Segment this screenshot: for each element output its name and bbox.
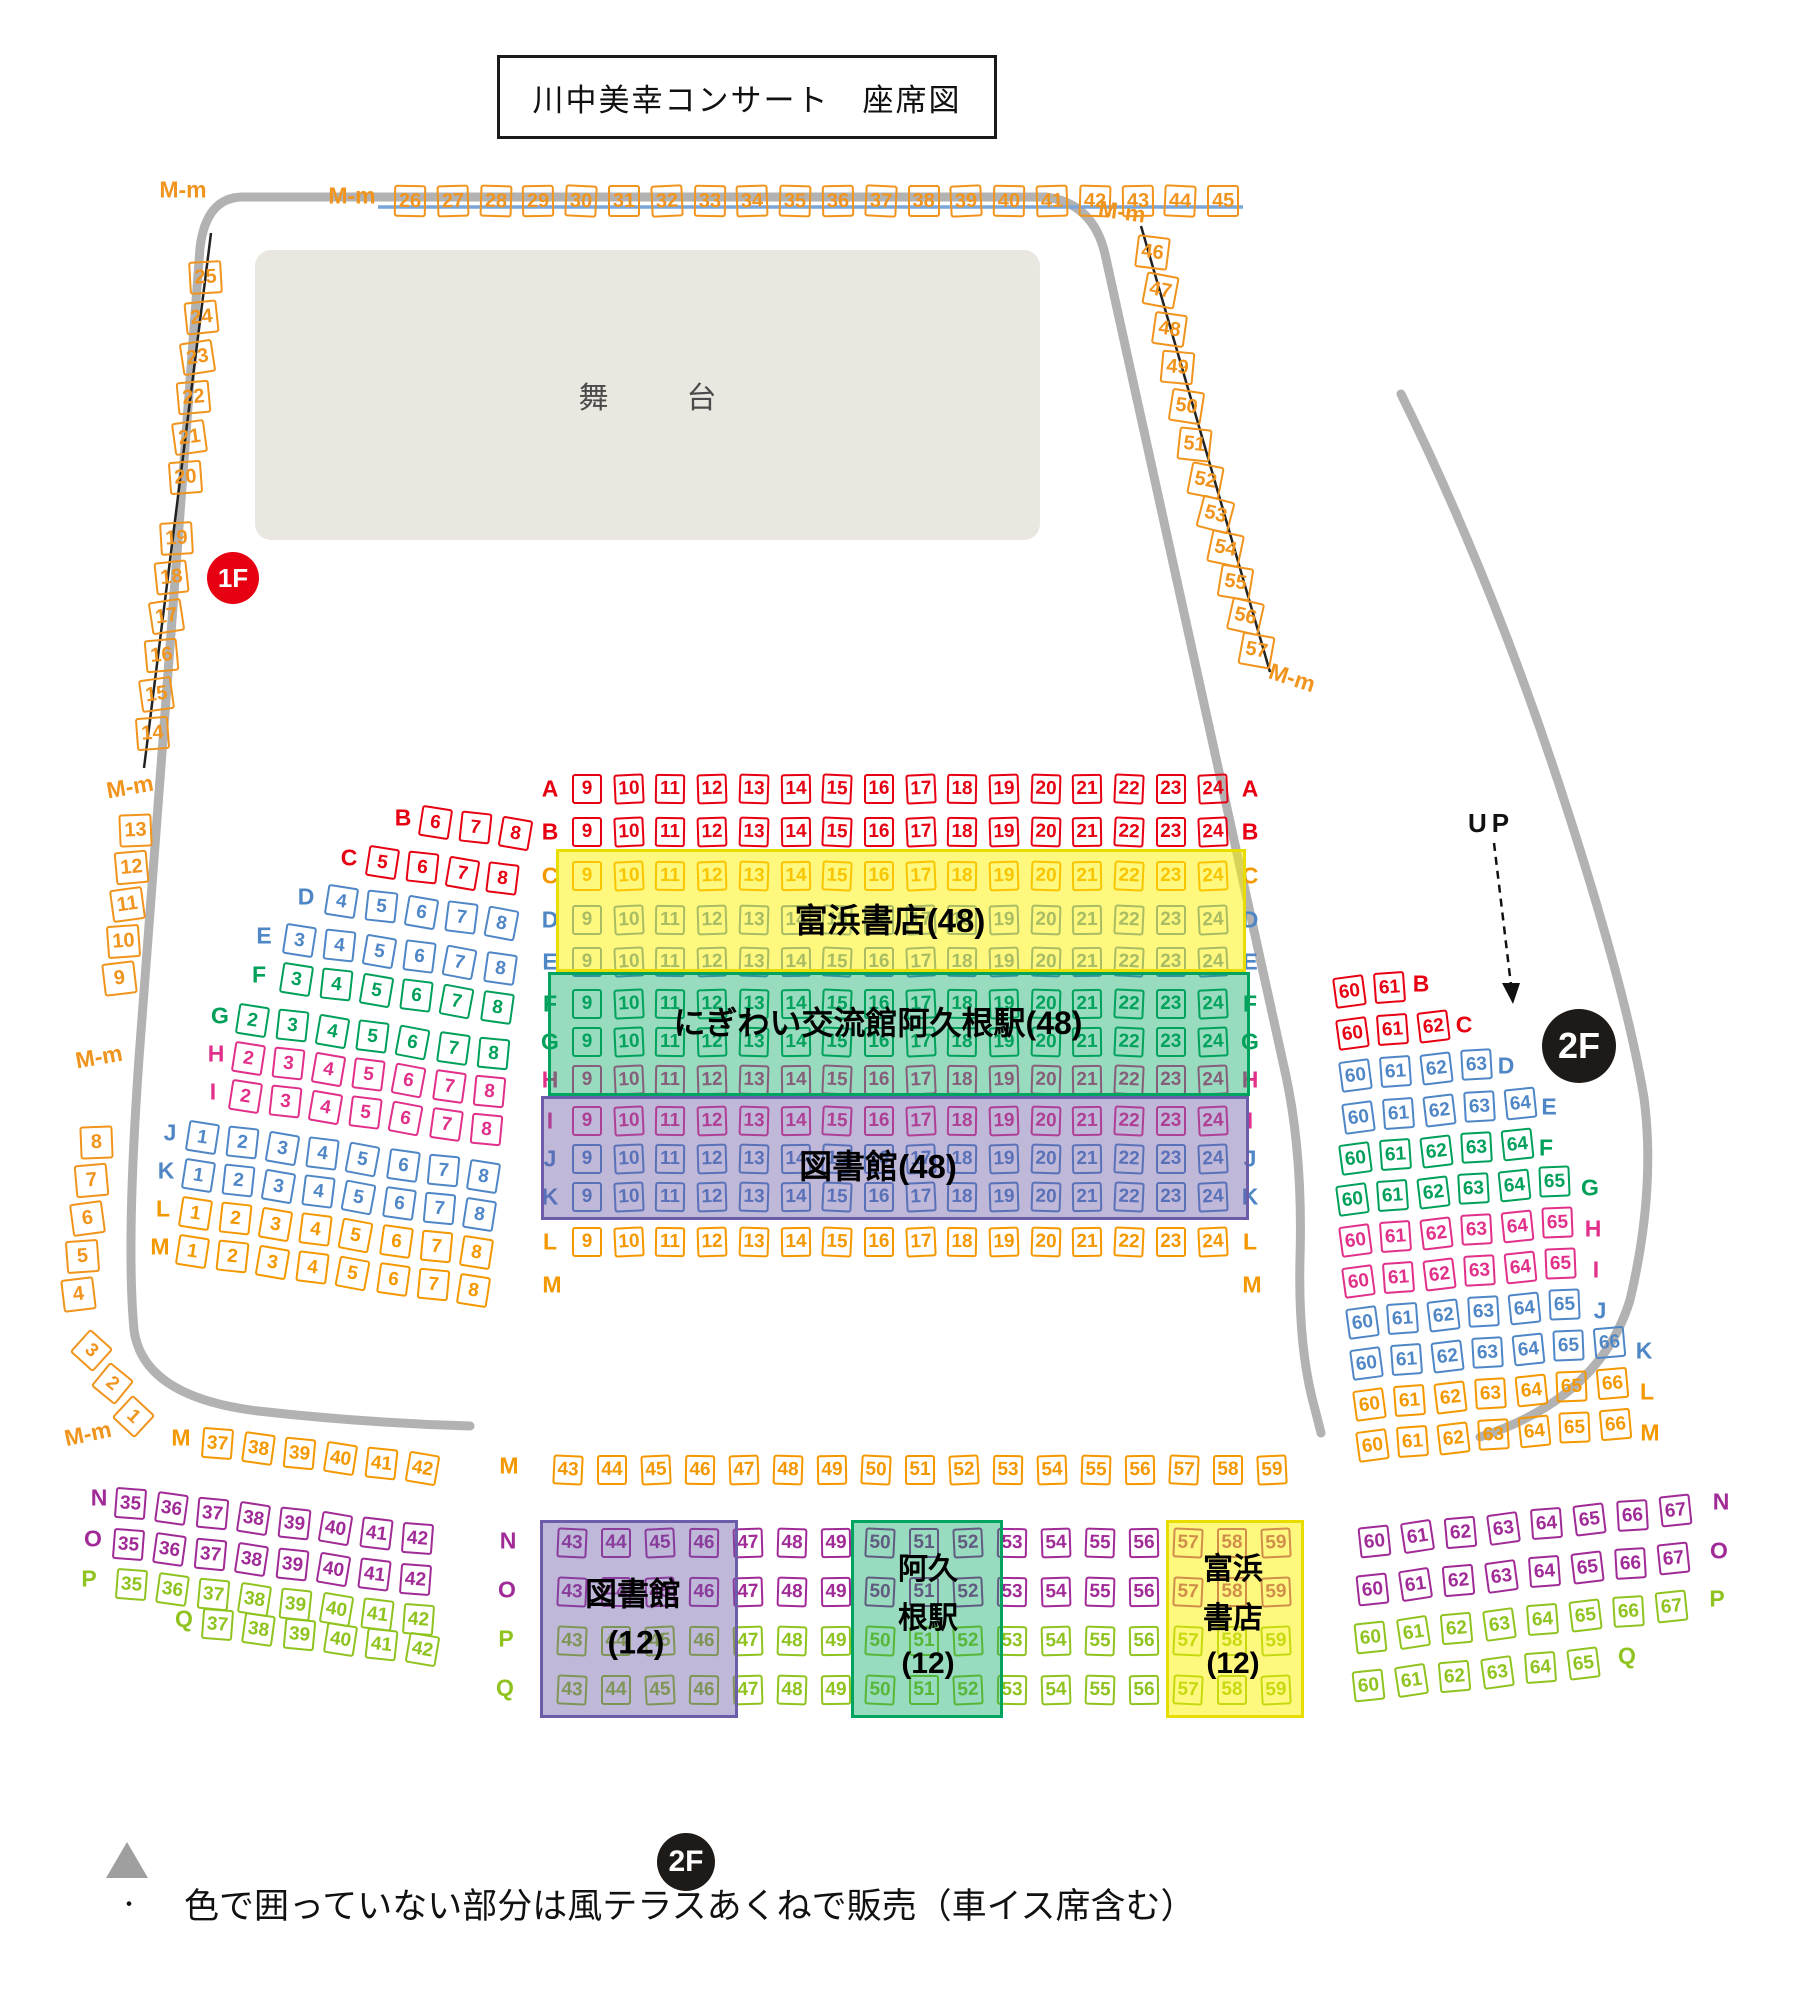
seat-right-L-61: 61	[1393, 1384, 1426, 1417]
seat-bcenter-N-48: 48	[777, 1528, 808, 1559]
chart-title-box: 川中美幸コンサート 座席図	[497, 55, 997, 139]
seat-right-G-65: 65	[1538, 1165, 1570, 1197]
seat-right-H-63: 63	[1460, 1213, 1493, 1246]
seat-right-H-65: 65	[1541, 1206, 1573, 1238]
seat-bleft-Q-41: 41	[364, 1627, 398, 1661]
seat-left-F-3: 3	[278, 961, 313, 996]
seat-center-A-14: 14	[780, 774, 810, 804]
seat-center-A-15: 15	[821, 773, 852, 804]
footnote-text: 色で囲っていない部分は風テラスあくねで販売（車イス席含む）	[184, 1887, 1196, 1926]
seat-center-B-16: 16	[864, 817, 894, 847]
seat-bcenter-P-56: 56	[1129, 1626, 1159, 1656]
row-label-left-M-0: M	[150, 1234, 169, 1261]
row-label-mm-top-0: M-m	[328, 183, 375, 210]
seat-left-G-5: 5	[355, 1019, 390, 1054]
seat-left-F-6: 6	[399, 978, 434, 1013]
row-label-left-C-0: C	[341, 845, 358, 872]
seat-left-H-3: 3	[271, 1047, 305, 1081]
seat-right-D-63: 63	[1460, 1048, 1493, 1081]
section-akune-station-48-label-0: にぎわい交流館阿久根駅(48)	[674, 998, 1083, 1044]
seat-left-D-6: 6	[403, 894, 439, 930]
seat-mm-right-a-51: 51	[1176, 426, 1212, 462]
seat-bcenter-M-57: 57	[1168, 1454, 1199, 1485]
footnote: ・色で囲っていない部分は風テラスあくねで販売（車イス席含む）	[118, 1878, 1196, 1929]
seat-left-K-7: 7	[422, 1192, 456, 1226]
seat-right-G-64: 64	[1497, 1168, 1531, 1202]
seat-bright-O-60: 60	[1355, 1572, 1389, 1606]
seat-right-I-65: 65	[1544, 1247, 1576, 1279]
seat-right-L-64: 64	[1514, 1373, 1548, 1407]
seat-bcenter-M-48: 48	[773, 1455, 804, 1486]
seat-right-E-63: 63	[1463, 1090, 1496, 1123]
seat-right-H-61: 61	[1379, 1220, 1412, 1253]
row-label-center-B-1: B	[1242, 819, 1259, 846]
seat-bright-Q-60: 60	[1351, 1668, 1385, 1702]
seat-bcenter-M-47: 47	[729, 1455, 760, 1486]
seat-right-B-61: 61	[1373, 971, 1406, 1004]
seat-mm-top-34: 34	[736, 185, 769, 218]
seat-right-G-63: 63	[1457, 1172, 1490, 1205]
seat-bleft-P-42: 42	[401, 1602, 434, 1635]
seat-mm-top-35: 35	[779, 185, 812, 218]
seat-bcenter-O-49: 49	[821, 1577, 851, 1607]
seat-bcenter-O-56: 56	[1129, 1577, 1159, 1607]
seat-right-M-64: 64	[1517, 1414, 1551, 1448]
seat-left-L-4: 4	[298, 1212, 333, 1247]
seat-bright-P-65: 65	[1568, 1598, 1602, 1632]
seat-left-K-6: 6	[381, 1185, 416, 1220]
seat-bcenter-Q-56: 56	[1129, 1675, 1159, 1705]
seat-left-J-4: 4	[305, 1136, 340, 1171]
seat-mm-top-33: 33	[693, 185, 725, 217]
seat-center-L-14: 14	[780, 1227, 810, 1257]
seat-bright-Q-63: 63	[1480, 1655, 1515, 1690]
seat-bleft-M-40: 40	[322, 1440, 357, 1475]
section-library-12-label-0: 図書館	[585, 1569, 681, 1615]
seat-left-G-2: 2	[234, 1002, 269, 1037]
seat-right-I-61: 61	[1382, 1261, 1415, 1294]
seat-left-K-2: 2	[221, 1164, 255, 1198]
seat-center-B-23: 23	[1156, 817, 1186, 847]
row-label-bcenter-N-0: N	[500, 1528, 517, 1555]
seat-right-K-61: 61	[1390, 1343, 1423, 1376]
seat-mm-left-a-22: 22	[175, 379, 211, 415]
floor-2f-badge-bottom: 2F	[657, 1833, 715, 1891]
seat-left-K-4: 4	[301, 1174, 336, 1209]
seat-center-L-22: 22	[1113, 1226, 1144, 1257]
seat-mm-top-32: 32	[650, 184, 683, 217]
row-label-right-J-0: J	[1594, 1298, 1607, 1325]
seat-left-G-6: 6	[395, 1024, 431, 1060]
seat-center-A-12: 12	[697, 774, 728, 805]
seat-mm-right-b-54: 54	[1206, 528, 1245, 567]
seat-left-C-5: 5	[364, 844, 399, 879]
seat-mm-left-d-5: 5	[65, 1238, 100, 1273]
row-label-center-A-0: A	[542, 776, 559, 803]
row-label-right-M-0: M	[1640, 1420, 1659, 1447]
seat-bcenter-M-51: 51	[905, 1455, 935, 1485]
row-label-left-F-0: F	[252, 962, 266, 989]
footnote-bullet: ・	[118, 1892, 140, 1917]
row-label-right-D-0: D	[1498, 1053, 1515, 1080]
seat-center-B-22: 22	[1113, 816, 1144, 847]
seat-mm-right-b-52: 52	[1186, 461, 1225, 500]
seat-right-F-64: 64	[1500, 1127, 1534, 1161]
seat-left-F-4: 4	[319, 968, 353, 1002]
seat-left-J-5: 5	[345, 1141, 381, 1177]
seat-left-L-6: 6	[378, 1223, 413, 1258]
seat-right-I-63: 63	[1463, 1254, 1496, 1287]
seat-left-J-7: 7	[426, 1154, 460, 1188]
seat-mm-left-c-9: 9	[101, 960, 138, 997]
seat-bright-O-63: 63	[1484, 1559, 1519, 1594]
seat-bleft-Q-40: 40	[322, 1621, 357, 1656]
seat-left-I-3: 3	[268, 1085, 302, 1119]
seat-right-L-63: 63	[1474, 1377, 1507, 1410]
seat-right-K-64: 64	[1511, 1332, 1545, 1366]
row-label-right-F-0: F	[1539, 1135, 1553, 1162]
seat-right-M-66: 66	[1598, 1407, 1632, 1441]
seat-center-L-16: 16	[864, 1227, 894, 1257]
row-label-right-K-0: K	[1636, 1338, 1653, 1365]
row-label-bright-Q-0: Q	[1618, 1643, 1636, 1670]
seat-bcenter-M-56: 56	[1125, 1455, 1155, 1485]
seat-center-A-9: 9	[572, 774, 602, 804]
seat-bcenter-M-46: 46	[685, 1455, 715, 1485]
seat-left-E-6: 6	[402, 939, 437, 974]
seat-left-J-6: 6	[385, 1147, 420, 1182]
seat-left-E-3: 3	[281, 922, 316, 957]
seat-bright-N-66: 66	[1616, 1499, 1649, 1532]
seat-right-E-61: 61	[1382, 1097, 1415, 1130]
section-library-12	[540, 1520, 738, 1718]
seat-left-I-6: 6	[388, 1100, 424, 1136]
seat-bleft-P-35: 35	[114, 1567, 147, 1600]
triangle-marker	[106, 1842, 148, 1878]
seat-mm-top-27: 27	[436, 185, 469, 218]
seat-bleft-P-40: 40	[318, 1591, 354, 1627]
row-label-right-H-0: H	[1585, 1216, 1602, 1243]
row-label-bright-P-0: P	[1709, 1586, 1724, 1613]
seat-left-M-1: 1	[174, 1233, 209, 1268]
seat-center-B-15: 15	[821, 816, 852, 847]
row-label-bleft-M-0: M	[171, 1425, 190, 1452]
seat-mm-left-a-21: 21	[170, 418, 207, 455]
seat-left-E-5: 5	[361, 933, 397, 969]
seat-mm-top-39: 39	[950, 184, 983, 217]
seat-mm-top-45: 45	[1207, 185, 1239, 217]
row-label-center-L-1: L	[1243, 1229, 1257, 1256]
seat-right-D-62: 62	[1419, 1051, 1453, 1085]
seat-mm-left-a-23: 23	[178, 338, 216, 376]
row-label-bcenter-Q-0: Q	[496, 1675, 514, 1702]
seat-mm-top-40: 40	[993, 185, 1025, 217]
seat-left-G-7: 7	[435, 1030, 470, 1065]
seat-center-A-20: 20	[1030, 774, 1061, 805]
seat-mm-left-d-6: 6	[68, 1199, 105, 1236]
seat-right-K-65: 65	[1552, 1329, 1584, 1361]
seat-bcenter-M-50: 50	[860, 1454, 891, 1485]
seat-bright-N-67: 67	[1658, 1494, 1692, 1528]
seat-bright-N-64: 64	[1529, 1507, 1562, 1540]
seat-bleft-N-40: 40	[317, 1510, 353, 1546]
seat-bcenter-M-45: 45	[640, 1454, 671, 1485]
seat-bright-P-62: 62	[1439, 1612, 1473, 1646]
seat-bright-Q-62: 62	[1437, 1660, 1471, 1694]
seat-right-M-63: 63	[1477, 1418, 1510, 1451]
seat-bleft-Q-42: 42	[404, 1631, 440, 1667]
seat-center-A-10: 10	[613, 773, 644, 804]
row-label-right-G-0: G	[1581, 1175, 1599, 1202]
row-label-bleft-Q-0: Q	[175, 1606, 193, 1633]
seat-bcenter-M-43: 43	[552, 1454, 583, 1485]
seat-right-F-63: 63	[1460, 1131, 1493, 1164]
seat-bright-N-63: 63	[1486, 1511, 1521, 1546]
seat-right-I-62: 62	[1422, 1257, 1456, 1291]
seat-mm-left-d-8: 8	[79, 1125, 113, 1159]
seat-left-K-5: 5	[341, 1179, 377, 1215]
seat-bleft-O-36: 36	[152, 1532, 187, 1567]
seat-left-M-6: 6	[375, 1261, 410, 1296]
seat-bright-N-61: 61	[1399, 1519, 1434, 1554]
seat-mm-top-29: 29	[522, 185, 554, 217]
seat-bcenter-M-52: 52	[948, 1454, 979, 1485]
up-label: UP	[1468, 808, 1514, 839]
seat-bright-P-60: 60	[1353, 1620, 1387, 1654]
seat-bcenter-P-48: 48	[777, 1626, 808, 1657]
seat-mm-left-b-14: 14	[134, 715, 169, 750]
row-label-bcenter-M-0: M	[499, 1453, 518, 1480]
seat-mm-right-b-57: 57	[1237, 631, 1275, 669]
seat-bcenter-M-54: 54	[1037, 1455, 1068, 1486]
seat-left-D-4: 4	[323, 883, 358, 918]
seat-left-C-7: 7	[444, 855, 480, 891]
seat-left-E-8: 8	[482, 950, 517, 985]
seat-right-G-62: 62	[1416, 1175, 1450, 1209]
seat-bleft-P-39: 39	[278, 1587, 312, 1621]
row-label-bleft-N-0: N	[91, 1485, 108, 1512]
seat-center-B-13: 13	[738, 817, 769, 848]
section-tomihama-48-label-0: 富浜書店(48)	[795, 894, 986, 942]
seat-left-F-5: 5	[358, 972, 394, 1008]
seat-mm-top-31: 31	[608, 185, 640, 217]
seat-left-J-8: 8	[466, 1158, 501, 1193]
seat-mm-right-b-55: 55	[1217, 563, 1255, 601]
seat-left-M-8: 8	[456, 1272, 491, 1307]
row-label-left-D-0: D	[298, 884, 315, 911]
seat-mm-right-a-47: 47	[1141, 271, 1180, 310]
row-label-center-A-1: A	[1242, 776, 1259, 803]
seat-right-J-63: 63	[1467, 1295, 1500, 1328]
seat-bright-O-67: 67	[1656, 1542, 1690, 1576]
seat-bcenter-M-59: 59	[1256, 1454, 1287, 1485]
seat-bleft-N-38: 38	[235, 1500, 270, 1535]
seat-left-C-6: 6	[405, 851, 439, 885]
seat-center-L-20: 20	[1030, 1227, 1061, 1258]
row-label-left-E-0: E	[256, 923, 271, 950]
seat-center-B-11: 11	[655, 817, 685, 847]
seat-bleft-O-40: 40	[315, 1551, 351, 1587]
row-label-bright-O-0: O	[1710, 1538, 1728, 1565]
seat-right-I-60: 60	[1341, 1264, 1376, 1299]
seat-left-L-5: 5	[338, 1217, 374, 1253]
seat-bleft-M-42: 42	[404, 1450, 440, 1486]
seat-center-B-10: 10	[613, 816, 644, 847]
seat-mm-top-38: 38	[908, 185, 940, 217]
seat-right-D-61: 61	[1379, 1055, 1412, 1088]
seat-left-H-7: 7	[431, 1068, 466, 1103]
seat-bcenter-Q-55: 55	[1085, 1675, 1116, 1706]
seat-mm-left-d-7: 7	[74, 1162, 110, 1198]
seat-right-G-60: 60	[1335, 1182, 1370, 1217]
seat-center-A-19: 19	[989, 774, 1020, 805]
seat-mm-top-37: 37	[864, 184, 897, 217]
seat-left-K-8: 8	[462, 1196, 497, 1231]
row-label-center-M-0: M	[542, 1272, 561, 1299]
seat-center-B-17: 17	[905, 816, 936, 847]
seat-right-K-66: 66	[1592, 1325, 1626, 1359]
up-arrow-head	[1502, 983, 1520, 1004]
seat-bcenter-O-48: 48	[777, 1577, 808, 1608]
row-label-bleft-O-0: O	[84, 1526, 102, 1553]
seat-right-K-62: 62	[1430, 1339, 1464, 1373]
row-label-right-B-0: B	[1413, 971, 1430, 998]
seat-left-H-4: 4	[310, 1051, 346, 1087]
row-label-left-G-0: G	[211, 1003, 229, 1030]
seat-mm-top-44: 44	[1164, 184, 1197, 217]
row-label-left-K-0: K	[158, 1158, 175, 1185]
seat-bleft-N-41: 41	[359, 1516, 394, 1551]
seat-right-L-65: 65	[1555, 1370, 1587, 1402]
seat-right-M-65: 65	[1558, 1411, 1590, 1443]
seat-right-H-64: 64	[1500, 1209, 1534, 1243]
seat-bleft-P-36: 36	[155, 1572, 190, 1607]
seat-left-M-3: 3	[254, 1244, 290, 1280]
seat-left-K-3: 3	[260, 1168, 296, 1204]
seat-right-F-62: 62	[1419, 1134, 1453, 1168]
seat-center-L-19: 19	[989, 1227, 1020, 1258]
row-label-bright-N-0: N	[1713, 1489, 1730, 1516]
seat-bright-P-67: 67	[1654, 1590, 1688, 1624]
seat-left-L-2: 2	[218, 1202, 252, 1236]
row-label-left-I-0: I	[210, 1079, 216, 1106]
seat-left-D-8: 8	[484, 905, 520, 941]
seat-bleft-M-41: 41	[364, 1446, 398, 1480]
section-akune-station-12-label-2: (12)	[901, 1647, 954, 1681]
seat-left-K-1: 1	[180, 1157, 215, 1192]
seat-bleft-Q-37: 37	[200, 1607, 233, 1640]
seat-bcenter-N-49: 49	[821, 1528, 851, 1558]
seat-right-C-60: 60	[1335, 1016, 1370, 1051]
seat-center-A-24: 24	[1197, 773, 1228, 804]
seat-bright-O-66: 66	[1614, 1547, 1647, 1580]
seat-bright-P-63: 63	[1482, 1607, 1517, 1642]
seat-right-C-62: 62	[1416, 1009, 1450, 1043]
row-label-right-L-0: L	[1640, 1379, 1654, 1406]
seat-center-B-20: 20	[1030, 817, 1061, 848]
seat-left-D-5: 5	[364, 890, 398, 924]
seat-center-L-23: 23	[1156, 1227, 1186, 1257]
section-tomihama-12-label-0: 富浜	[1203, 1544, 1263, 1588]
seat-left-J-2: 2	[225, 1126, 259, 1160]
seat-mm-left-d-4: 4	[60, 1276, 97, 1313]
seat-center-B-9: 9	[572, 817, 602, 847]
seat-center-L-10: 10	[613, 1226, 644, 1257]
seat-bcenter-Q-54: 54	[1041, 1675, 1072, 1706]
seat-bleft-O-37: 37	[193, 1537, 227, 1571]
seat-bleft-M-39: 39	[282, 1436, 316, 1470]
seat-left-M-2: 2	[215, 1240, 249, 1274]
seat-mm-left-c-10: 10	[105, 923, 140, 958]
seat-mm-top-30: 30	[564, 184, 597, 217]
seat-center-L-24: 24	[1197, 1226, 1228, 1257]
seat-mm-left-a-24: 24	[183, 299, 219, 335]
seat-mm-left-b-17: 17	[148, 597, 186, 635]
seat-mm-top-36: 36	[822, 185, 854, 217]
seat-bcenter-M-58: 58	[1213, 1455, 1243, 1485]
seat-center-A-16: 16	[864, 774, 894, 804]
seat-left-B-8: 8	[497, 815, 533, 851]
seat-mm-left-b-15: 15	[138, 675, 175, 712]
seat-center-A-11: 11	[655, 774, 685, 804]
seat-mm-right-a-50: 50	[1167, 387, 1205, 425]
seat-bleft-Q-39: 39	[282, 1617, 316, 1651]
seat-mm-left-a-20: 20	[167, 459, 202, 494]
seat-bright-O-62: 62	[1441, 1564, 1475, 1598]
seat-right-J-60: 60	[1345, 1305, 1380, 1340]
seat-bcenter-P-49: 49	[821, 1626, 851, 1656]
seat-left-I-5: 5	[348, 1095, 383, 1130]
seat-right-J-62: 62	[1426, 1298, 1460, 1332]
seat-center-B-12: 12	[697, 817, 728, 848]
up-arrow-line	[1494, 843, 1511, 985]
row-label-mm-left-a-0: M-m	[159, 177, 206, 204]
seat-bleft-N-36: 36	[154, 1491, 189, 1526]
section-akune-station-12-label-0: 阿久	[898, 1544, 958, 1588]
row-label-right-C-0: C	[1456, 1012, 1473, 1039]
seat-left-L-8: 8	[459, 1234, 494, 1269]
seat-left-H-8: 8	[472, 1075, 506, 1109]
seat-center-B-24: 24	[1197, 816, 1228, 847]
seat-bcenter-N-55: 55	[1085, 1528, 1116, 1559]
seat-center-A-23: 23	[1156, 774, 1186, 804]
seat-bright-Q-64: 64	[1523, 1651, 1556, 1684]
seat-mm-left-b-16: 16	[144, 637, 180, 673]
seat-center-B-19: 19	[989, 817, 1020, 848]
seat-right-K-63: 63	[1471, 1336, 1504, 1369]
seat-center-L-9: 9	[572, 1227, 602, 1257]
seat-right-C-61: 61	[1376, 1013, 1409, 1046]
seat-bleft-Q-38: 38	[241, 1612, 276, 1647]
seat-center-B-14: 14	[780, 817, 810, 847]
seat-bcenter-N-54: 54	[1041, 1528, 1072, 1559]
seat-bcenter-Q-48: 48	[777, 1675, 808, 1706]
seat-left-I-7: 7	[428, 1106, 463, 1141]
seat-bleft-M-37: 37	[200, 1426, 233, 1459]
row-label-left-L-0: L	[156, 1196, 170, 1223]
seat-left-B-7: 7	[458, 811, 492, 845]
seat-mm-right-a-49: 49	[1160, 350, 1196, 386]
seat-right-L-60: 60	[1352, 1387, 1387, 1422]
seat-bcenter-P-55: 55	[1085, 1626, 1116, 1657]
seat-bcenter-O-55: 55	[1085, 1577, 1116, 1608]
seat-bcenter-M-53: 53	[993, 1455, 1023, 1485]
seat-bright-P-66: 66	[1612, 1595, 1645, 1628]
seat-left-C-8: 8	[485, 861, 520, 896]
seat-right-J-65: 65	[1548, 1288, 1580, 1320]
seat-bcenter-M-49: 49	[817, 1455, 847, 1485]
row-label-center-M-1: M	[1242, 1272, 1261, 1299]
